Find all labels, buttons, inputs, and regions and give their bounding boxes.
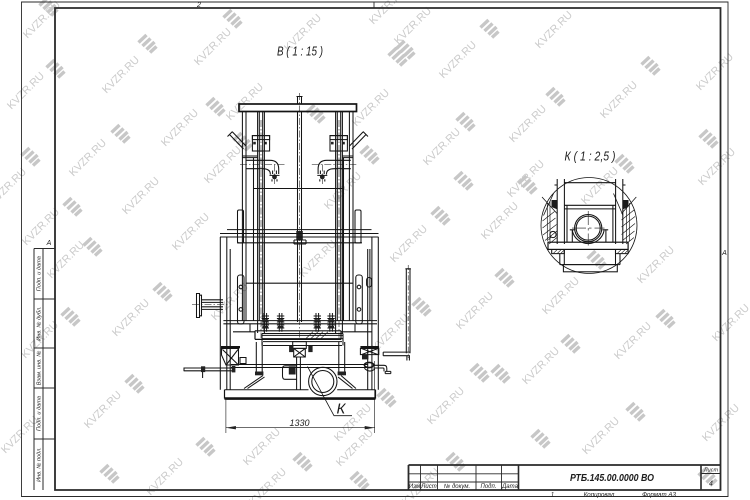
- svg-text:Подп. и дата: Подп. и дата: [37, 396, 43, 431]
- svg-text:Инв. № подл.: Инв. № подл.: [37, 447, 43, 482]
- svg-text:1: 1: [551, 492, 554, 499]
- svg-text:4: 4: [709, 481, 713, 488]
- svg-text:А: А: [721, 250, 727, 257]
- svg-text:В ( 1 : 15 ): В ( 1 : 15 ): [277, 45, 323, 59]
- svg-text:1330: 1330: [289, 418, 309, 428]
- svg-text:Инв. № дубл.: Инв. № дубл.: [37, 306, 43, 340]
- svg-text:Копировал: Копировал: [584, 492, 615, 499]
- svg-text:РТБ.145.00.0000 ВО: РТБ.145.00.0000 ВО: [570, 472, 654, 484]
- svg-text:Формат А3: Формат А3: [642, 492, 676, 499]
- svg-text:А: А: [46, 240, 52, 247]
- svg-text:№ докум.: № докум.: [444, 483, 470, 490]
- svg-text:Подп.: Подп.: [481, 484, 497, 490]
- svg-text:К: К: [337, 401, 347, 418]
- svg-text:Взам. инв. №: Взам. инв. №: [37, 351, 43, 386]
- svg-text:Дата: Дата: [501, 484, 518, 490]
- svg-text:2: 2: [196, 2, 201, 9]
- svg-text:Лист: Лист: [703, 468, 719, 474]
- svg-text:Подп. и дата: Подп. и дата: [37, 256, 43, 291]
- svg-text:К ( 1 : 2,5 ): К ( 1 : 2,5 ): [565, 150, 616, 164]
- svg-text:Изм: Изм: [409, 484, 420, 490]
- svg-text:Лист: Лист: [420, 484, 436, 490]
